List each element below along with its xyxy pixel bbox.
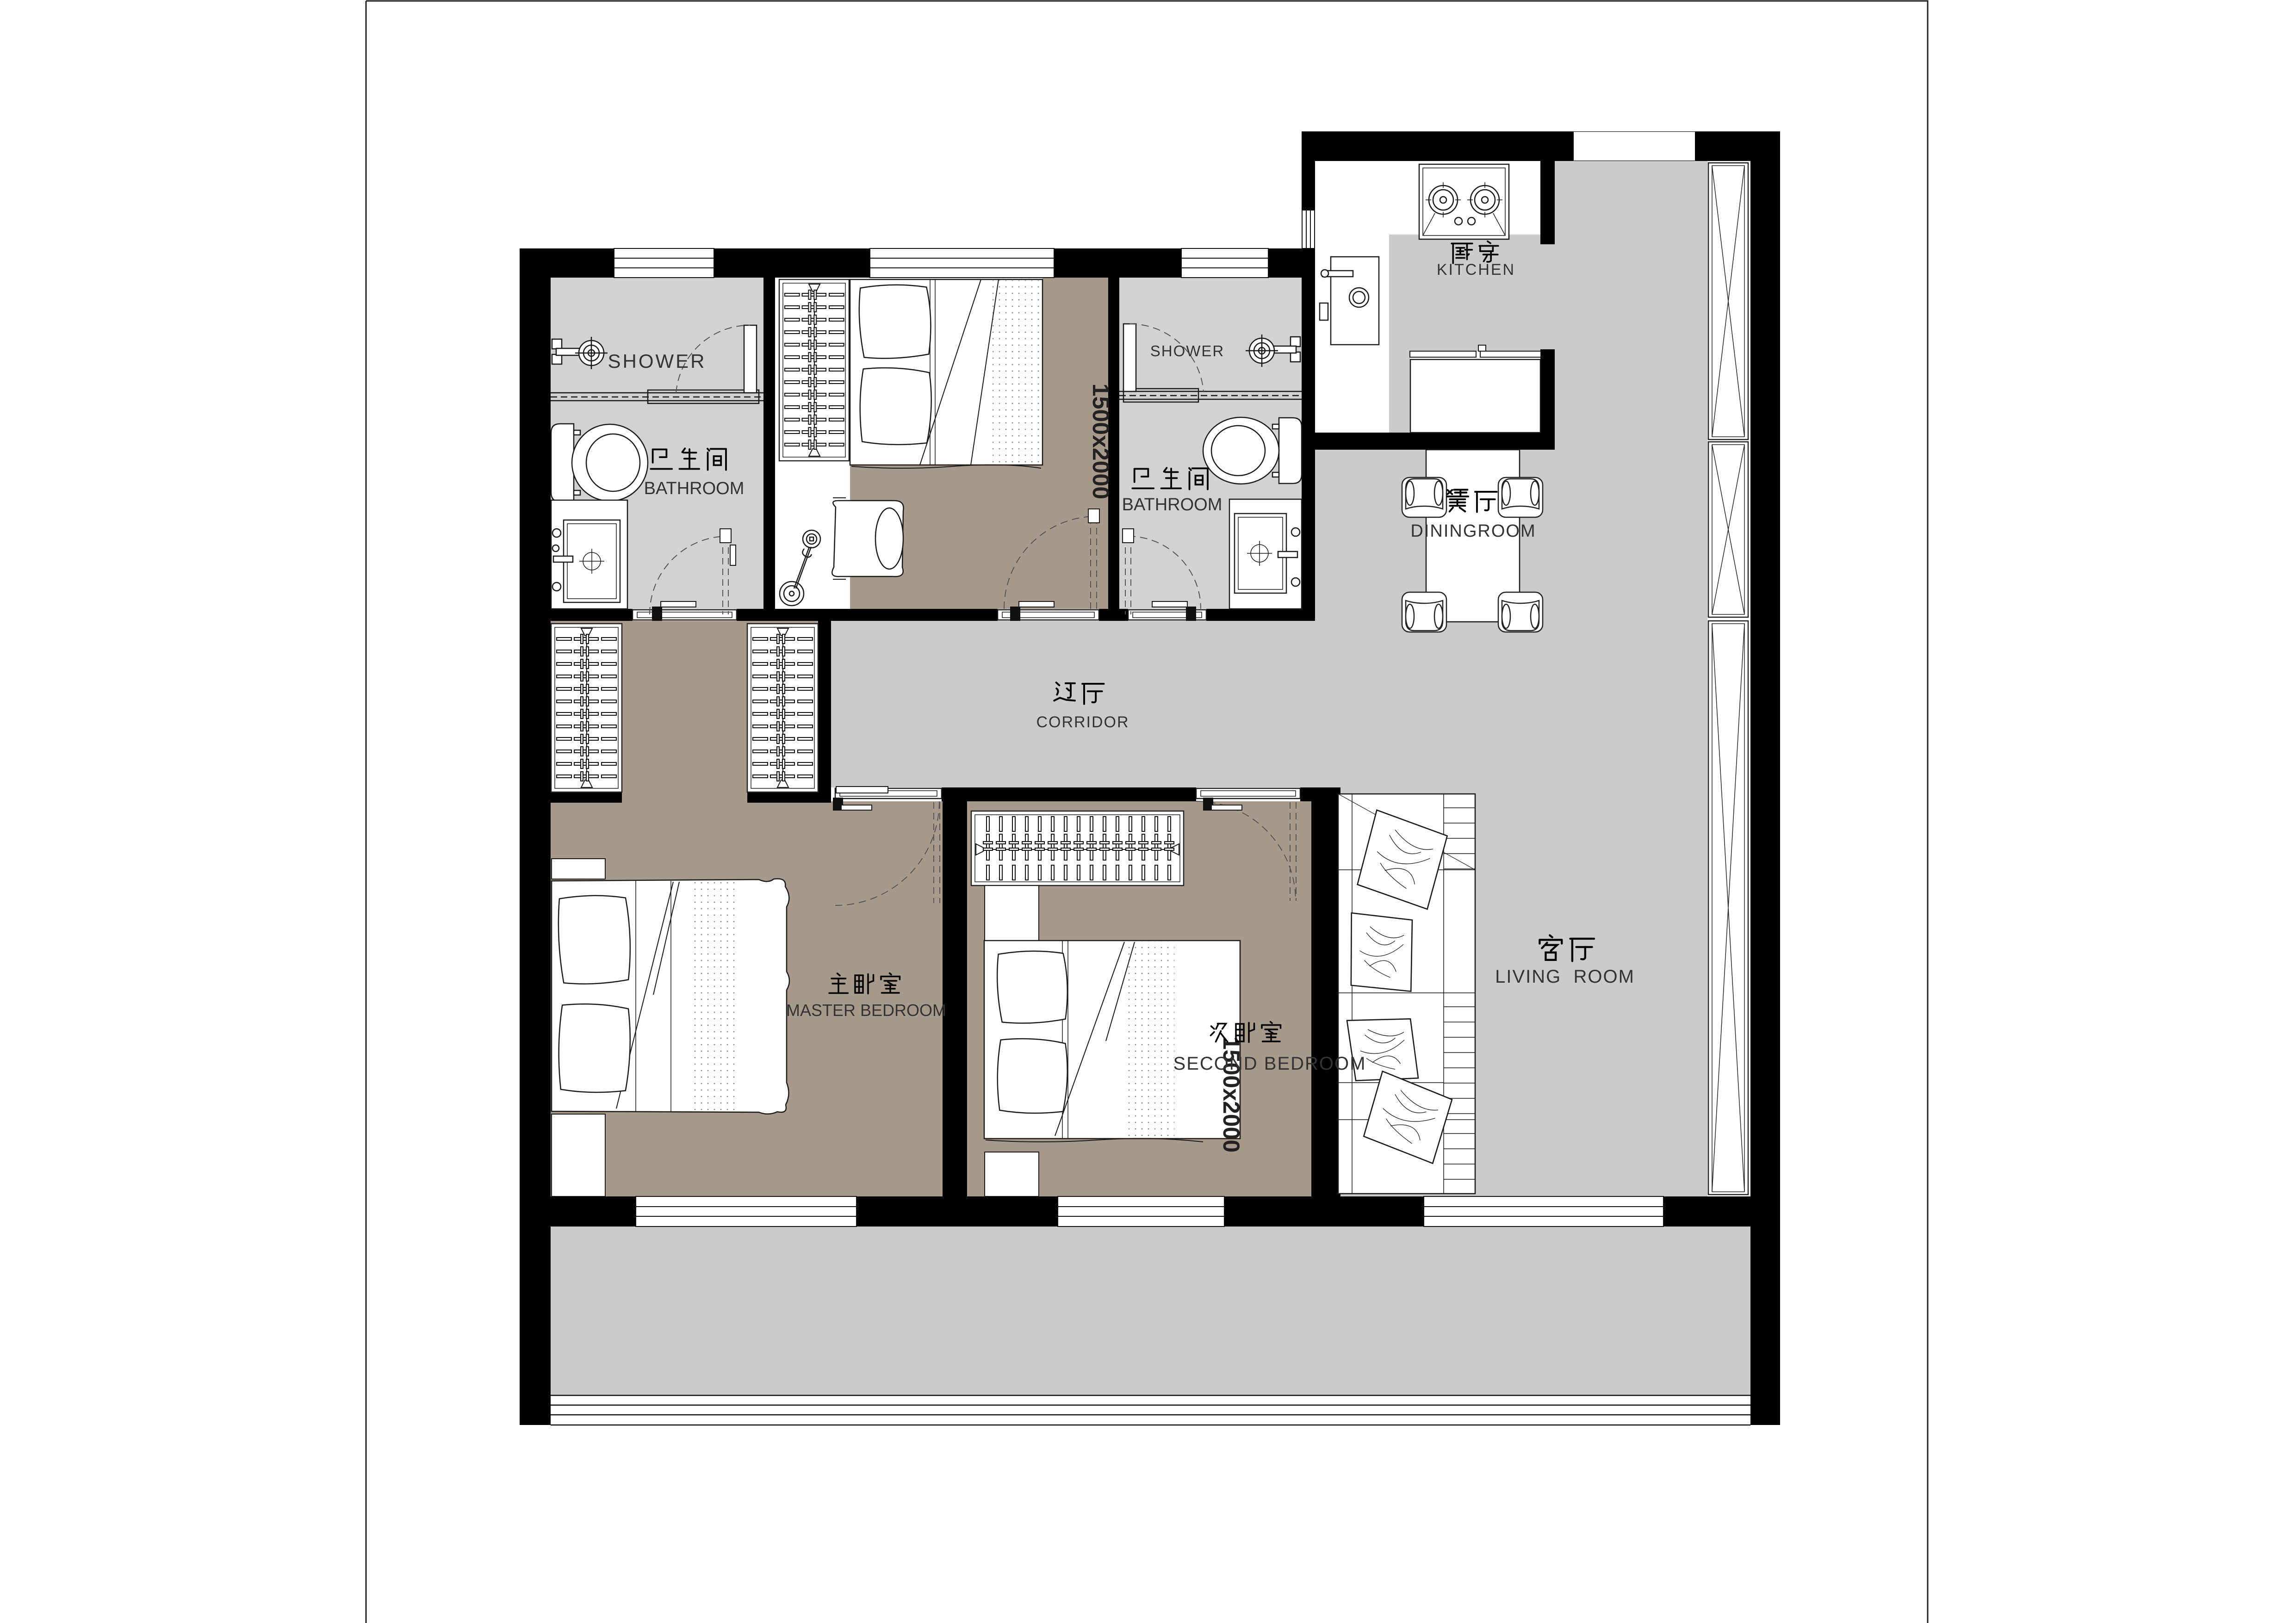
svg-text:MASTER BEDROOM: MASTER BEDROOM [786, 1001, 946, 1020]
svg-text:SECOND BEDROOM: SECOND BEDROOM [1173, 1053, 1366, 1074]
svg-text:SHOWER: SHOWER [1150, 342, 1225, 359]
svg-text:LIVING ROOM: LIVING ROOM [1495, 966, 1635, 987]
svg-text:DININGROOM: DININGROOM [1410, 521, 1536, 541]
svg-text:SHOWER: SHOWER [608, 350, 707, 372]
svg-text:BATHROOM: BATHROOM [644, 479, 745, 498]
svg-text:CORRIDOR: CORRIDOR [1036, 713, 1129, 731]
svg-text:BATHROOM: BATHROOM [1122, 495, 1222, 514]
svg-text:KITCHEN: KITCHEN [1437, 261, 1515, 279]
svg-text:1500x2000: 1500x2000 [1088, 384, 1114, 499]
